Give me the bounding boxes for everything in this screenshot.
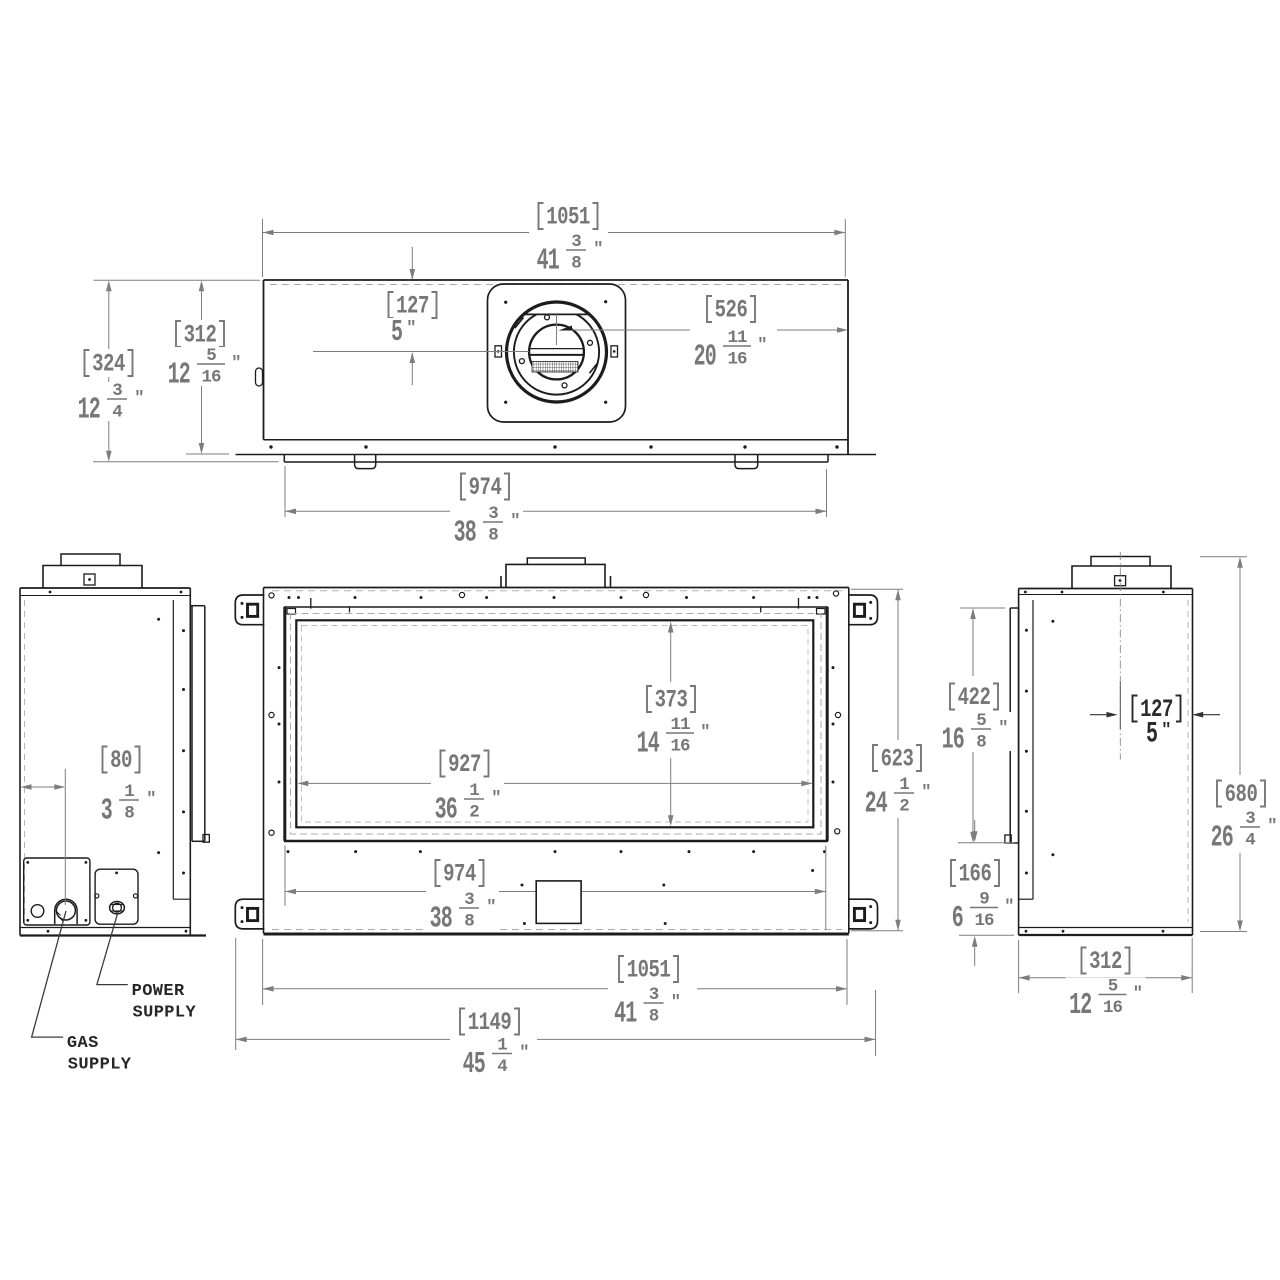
svg-text:12: 12 [1069,987,1092,1023]
svg-text:24: 24 [865,785,888,821]
svg-text:": " [1004,898,1013,917]
svg-text:16: 16 [201,368,221,388]
svg-text:927: 927 [448,751,481,779]
svg-text:3: 3 [112,381,122,401]
svg-text:1: 1 [899,775,909,795]
svg-text:": " [757,336,766,355]
svg-text:8: 8 [571,254,581,274]
svg-text:": " [1133,985,1142,1004]
svg-text:": " [998,719,1007,738]
svg-text:16: 16 [727,350,747,370]
svg-text:38: 38 [430,900,453,936]
svg-text:422: 422 [958,684,991,712]
svg-text:4: 4 [497,1057,507,1077]
svg-text:6: 6 [952,900,964,936]
svg-text:3: 3 [571,232,581,252]
svg-text:8: 8 [976,733,986,753]
svg-text:8: 8 [124,804,134,824]
svg-text:": " [134,389,143,408]
svg-text:312: 312 [184,321,217,349]
svg-text:41: 41 [537,242,560,278]
svg-text:3: 3 [464,890,474,910]
svg-text:38: 38 [454,514,477,550]
svg-text:8: 8 [464,912,474,932]
svg-text:": " [510,512,519,531]
svg-text:5: 5 [1146,717,1158,751]
svg-text:1149: 1149 [468,1009,512,1037]
svg-text:SUPPLY: SUPPLY [68,1056,132,1075]
svg-text:36: 36 [435,791,458,827]
svg-text:5: 5 [391,314,403,350]
svg-text:2: 2 [469,803,479,823]
svg-text:": " [1161,721,1170,740]
svg-text:1: 1 [469,781,479,801]
svg-text:1051: 1051 [546,203,590,231]
svg-text:5: 5 [976,711,986,731]
svg-text:11: 11 [727,328,747,348]
svg-text:16: 16 [1103,998,1123,1018]
svg-text:11: 11 [670,715,690,735]
svg-text:680: 680 [1225,781,1258,809]
svg-text:1: 1 [497,1036,507,1056]
svg-text:2: 2 [899,797,909,817]
svg-text:": " [406,319,415,338]
svg-text:80: 80 [110,747,132,775]
svg-text:12: 12 [168,356,191,392]
svg-text:": " [486,898,495,917]
svg-text:SUPPLY: SUPPLY [133,1003,197,1022]
svg-text:": " [671,993,680,1012]
svg-text:974: 974 [443,860,476,888]
svg-text:": " [146,790,155,809]
svg-text:41: 41 [614,995,637,1031]
svg-text:3: 3 [649,985,659,1005]
svg-text:": " [700,723,709,742]
svg-text:4: 4 [112,403,122,423]
svg-text:GAS: GAS [67,1034,99,1053]
svg-text:": " [593,240,602,259]
svg-text:9: 9 [979,890,989,910]
svg-text:623: 623 [881,745,914,773]
svg-text:5: 5 [1108,977,1118,997]
svg-text:166: 166 [959,860,992,888]
svg-text:26: 26 [1211,819,1234,855]
svg-text:": " [519,1044,528,1063]
svg-text:5: 5 [206,346,216,366]
svg-text:3: 3 [488,504,498,524]
svg-text:4: 4 [1245,831,1255,851]
svg-text:312: 312 [1089,948,1122,976]
svg-text:16: 16 [974,911,994,931]
svg-text:20: 20 [694,338,717,374]
svg-text:16: 16 [670,737,690,757]
svg-text:": " [231,354,240,373]
svg-text:3: 3 [101,792,113,828]
svg-text:8: 8 [488,526,498,546]
svg-text:373: 373 [655,686,688,714]
svg-text:1: 1 [124,782,134,802]
svg-text:12: 12 [78,391,101,427]
svg-text:": " [491,789,500,808]
svg-text:14: 14 [637,725,660,761]
svg-text:526: 526 [715,296,748,324]
svg-text:3: 3 [1245,809,1255,829]
svg-text:324: 324 [92,350,125,378]
svg-text:45: 45 [463,1046,486,1082]
svg-text:": " [1267,817,1276,836]
svg-text:1051: 1051 [627,956,671,984]
svg-text:974: 974 [469,474,502,502]
svg-text:POWER: POWER [132,982,185,1001]
svg-text:8: 8 [649,1007,659,1027]
svg-text:": " [921,783,930,802]
svg-text:16: 16 [942,721,965,757]
